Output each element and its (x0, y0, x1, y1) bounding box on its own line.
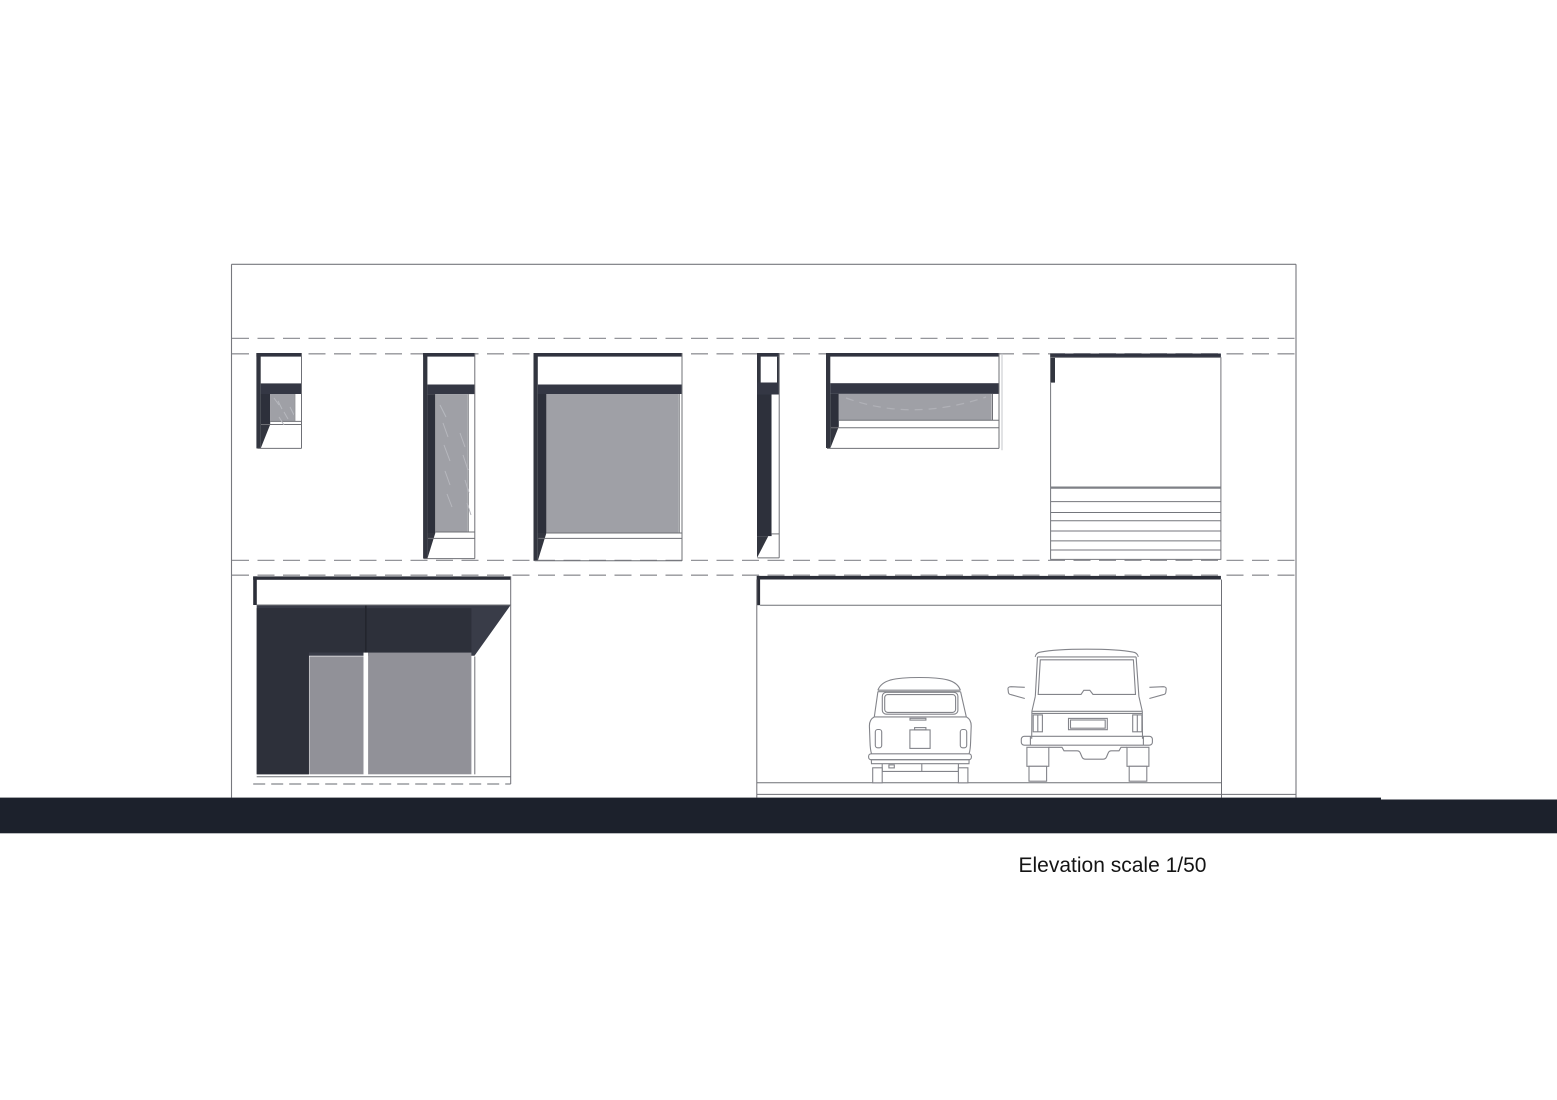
svg-text:Elevation scale 1/50: Elevation scale 1/50 (1019, 854, 1207, 877)
